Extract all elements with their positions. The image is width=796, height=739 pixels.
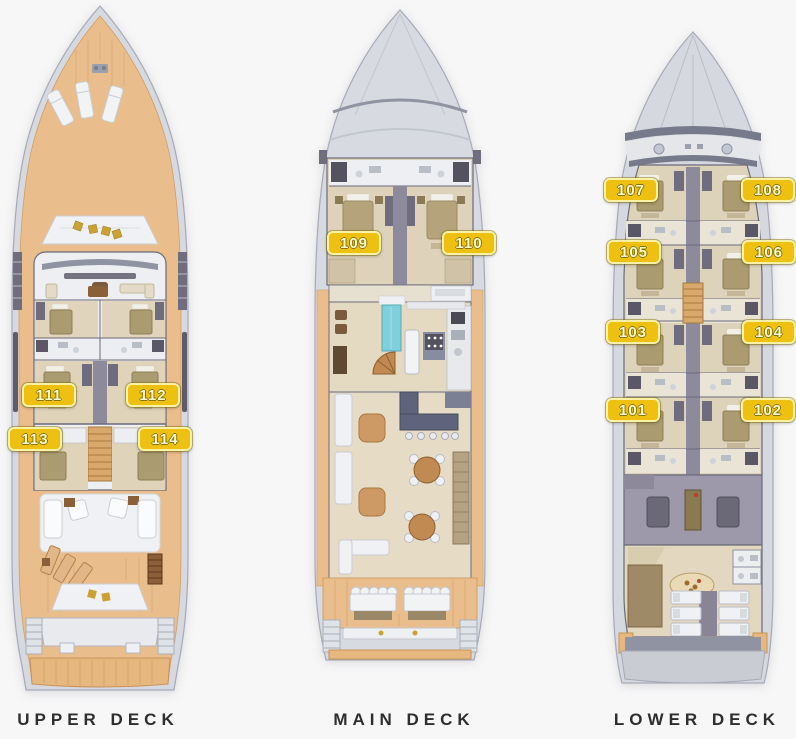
- cooktop: [423, 332, 445, 360]
- fridge: [405, 330, 419, 374]
- cabin-badge-107[interactable]: 107: [604, 178, 658, 202]
- superstructure: [34, 252, 166, 490]
- cabin-badge-113[interactable]: 113: [8, 427, 62, 451]
- stern: [619, 633, 767, 683]
- anchor-windlass: [92, 64, 108, 73]
- cabin-badge-103[interactable]: 103: [606, 320, 660, 344]
- aft-bench-1: [350, 587, 397, 620]
- aft-bench-2: [404, 587, 450, 620]
- swim-platform: [30, 658, 170, 687]
- crew-quarters: [624, 545, 762, 637]
- crew-bathroom: [733, 550, 761, 584]
- crew-bunks: [671, 591, 749, 636]
- deck-caption-upper: UPPER DECK: [17, 710, 178, 730]
- center-stairs: [683, 283, 703, 323]
- side-deck-left: [317, 290, 329, 586]
- cabinet: [453, 452, 469, 544]
- stern-stairs-right: [460, 620, 477, 652]
- main-deck-plan: [295, 0, 505, 665]
- corridor: [393, 186, 407, 285]
- lower-deck-plan: [595, 25, 795, 695]
- cabin-badge-101[interactable]: 101: [606, 398, 660, 422]
- stern-stairs-right: [158, 618, 174, 654]
- side-deck-right: [471, 290, 483, 586]
- cabin-badge-102[interactable]: 102: [741, 398, 795, 422]
- dining-table-1: [410, 455, 445, 486]
- cabin-badge-109[interactable]: 109: [327, 231, 381, 255]
- yacht-deck-plans: 111 112 113 114 109 110 107 108 105 106 …: [0, 0, 796, 739]
- stairwell: [88, 427, 112, 481]
- dining-table-2: [405, 512, 440, 543]
- cabin-badge-105[interactable]: 105: [607, 240, 661, 264]
- vip-cabins: [327, 158, 473, 285]
- cabin-badge-104[interactable]: 104: [742, 320, 796, 344]
- stern-stairs-left: [26, 618, 42, 654]
- deck-caption-lower: LOWER DECK: [614, 710, 780, 730]
- bow-seating: [42, 216, 158, 244]
- corridor: [93, 361, 107, 424]
- aft-lounge: [40, 494, 160, 552]
- cabin-badge-108[interactable]: 108: [741, 178, 795, 202]
- deck-caption-main: MAIN DECK: [333, 710, 474, 730]
- swim-platform: [329, 650, 471, 659]
- cabin-badge-114[interactable]: 114: [138, 427, 192, 451]
- cabin-badge-112[interactable]: 112: [126, 383, 180, 407]
- galley: [329, 296, 471, 392]
- side-table: [42, 558, 50, 566]
- aft-sun-pad: [52, 584, 148, 610]
- ladder: [148, 554, 162, 584]
- cabin-badge-110[interactable]: 110: [442, 231, 496, 255]
- cabin-badge-111[interactable]: 111: [22, 383, 76, 407]
- stern-stairs-left: [323, 620, 340, 652]
- cabin-badge-106[interactable]: 106: [742, 240, 796, 264]
- upper-deck-plan: [0, 0, 200, 700]
- engine-room: [624, 475, 762, 545]
- salon-dining: [329, 392, 471, 578]
